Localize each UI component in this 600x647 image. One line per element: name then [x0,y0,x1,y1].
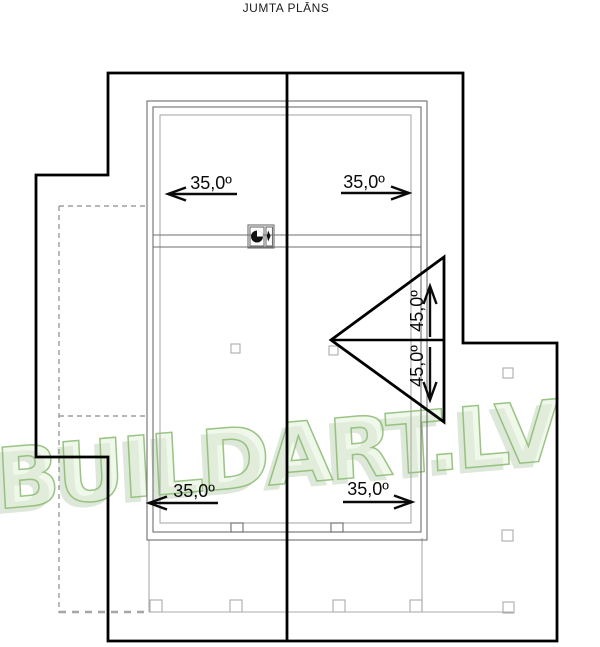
slope-label-gable-lower: 45,0º [407,345,427,387]
roof-plan-page: JUMTA PLĀNS BUILDART.LV [0,0,600,647]
hidden-outline-dashed [59,206,149,613]
terrace-post [230,600,242,612]
eave-post [331,523,343,532]
slope-label-bottom-left: 35,0º [173,481,215,501]
building-outline [36,73,557,641]
slope-label-top-right: 35,0º [343,172,385,192]
terrace-post [333,600,345,612]
slope-label-gable-upper: 45,0º [407,290,427,332]
roof-plan-drawing: 35,0º 35,0º 35,0º 35,0º 45,0º 45,0º [0,0,600,647]
eave-post [231,523,243,532]
slope-label-top-left: 35,0º [190,173,232,193]
slope-label-bottom-right: 35,0º [347,479,389,499]
chimney-icon [248,225,274,248]
terrace-post [150,600,162,612]
terrace-post [410,600,422,612]
roof-hatches [231,344,338,355]
terrace-outline [149,538,513,612]
right-side-posts [502,368,514,613]
